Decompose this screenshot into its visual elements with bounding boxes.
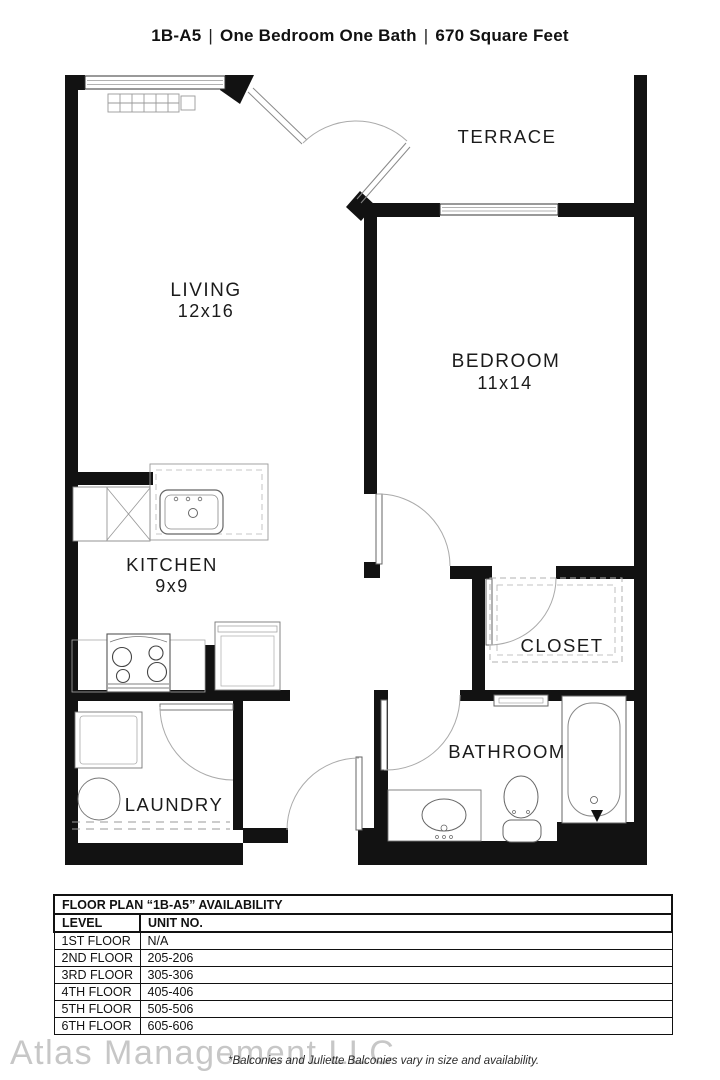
wall-top-left (65, 75, 85, 90)
terrace-door-fixed-leaf (248, 92, 302, 144)
washer-icon (75, 712, 142, 768)
table-title-row: FLOOR PLAN “1B-A5” AVAILABILITY (54, 895, 672, 914)
heater-control-box (181, 96, 195, 110)
wall-bottom-bathroom (370, 841, 647, 865)
room-label-terrace: TERRACE (458, 126, 557, 147)
col-header-unit: UNIT NO. (140, 914, 672, 932)
room-dims-bedroom: 11x14 (477, 373, 532, 393)
unit-cell: N/A (140, 932, 672, 950)
wall-bottom-laundry (65, 843, 243, 865)
bedroom-window (440, 204, 558, 215)
table-header-row: LEVEL UNIT NO. (54, 914, 672, 932)
col-header-level: LEVEL (54, 914, 140, 932)
toilet-icon (504, 776, 538, 818)
terrace-door-leaf (357, 143, 406, 199)
kitchen-sink-icon (160, 490, 223, 534)
level-cell: 2ND FLOOR (54, 950, 140, 967)
room-label-closet: CLOSET (520, 635, 603, 656)
wall-bedroom-left (364, 214, 377, 494)
availability-table: FLOOR PLAN “1B-A5” AVAILABILITY LEVEL UN… (53, 894, 673, 1035)
shower-niche (494, 695, 548, 706)
table-row: 6TH FLOOR 605-606 (54, 1018, 672, 1035)
bedroom-door-arc (377, 494, 450, 566)
terrace-french-door (248, 88, 410, 203)
room-label-kitchen: KITCHEN (126, 554, 218, 575)
table-row: 3RD FLOOR 305-306 (54, 967, 672, 984)
table-row: 4TH FLOOR 405-406 (54, 984, 672, 1001)
wall-bottom-step (243, 828, 288, 843)
wall-laundry-right (233, 701, 243, 830)
room-label-bedroom: BEDROOM (452, 351, 561, 372)
vanity-basin (422, 799, 466, 831)
table-row: 1ST FLOOR N/A (54, 932, 672, 950)
company-watermark: Atlas Management LLC (10, 1034, 395, 1073)
table-title: FLOOR PLAN “1B-A5” AVAILABILITY (54, 895, 672, 914)
level-cell: 5TH FLOOR (54, 1001, 140, 1018)
unit-cell: 205-206 (140, 950, 672, 967)
terrace-door-swing-arc (303, 121, 407, 143)
level-cell: 6TH FLOOR (54, 1018, 140, 1035)
floor-plan-page: 1B-A5|One Bedroom One Bath|670 Square Fe… (0, 0, 720, 1080)
wall-kitchen-stub (65, 472, 153, 485)
wall-kitchen-peninsula (205, 645, 216, 701)
table-row: 2ND FLOOR 205-206 (54, 950, 672, 967)
unit-cell: 405-406 (140, 984, 672, 1001)
laundry-door-arc (160, 707, 233, 780)
wall-kitchen-bottom-right (216, 690, 290, 701)
room-label-bathroom: BATHROOM (448, 741, 566, 762)
living-window (85, 76, 225, 89)
level-cell: 1ST FLOOR (54, 932, 140, 950)
balcony-disclaimer-note: *Balconies and Juliette Balconies vary i… (228, 1055, 539, 1067)
laundry-door-leaf (160, 704, 233, 710)
entry-door-leaf (356, 757, 362, 830)
wall-bedroom-top-right (558, 203, 647, 217)
bedroom-door-leaf (376, 494, 382, 564)
toilet-tank (503, 820, 541, 842)
level-cell: 4TH FLOOR (54, 984, 140, 1001)
refrigerator-icon (73, 487, 150, 541)
table-row: 5TH FLOOR 505-506 (54, 1001, 672, 1018)
wall-closet-top-left (450, 566, 492, 579)
room-label-laundry: LAUNDRY (125, 794, 224, 815)
terrace-door-fixed-leaf (253, 88, 307, 140)
wall-right (634, 75, 647, 865)
wall-closet-top-right (556, 566, 634, 579)
terrace-door-leaf (361, 147, 410, 203)
dryer-icon (78, 778, 120, 820)
burner (117, 670, 130, 683)
closet-door-leaf (486, 579, 492, 645)
burner (113, 648, 132, 667)
wall-bottom-right-block (557, 822, 647, 841)
living-heater-icon (108, 94, 195, 112)
bathroom-door-leaf (381, 700, 387, 770)
room-label-living: LIVING (170, 280, 241, 301)
unit-cell: 305-306 (140, 967, 672, 984)
room-dims-living: 12x16 (178, 301, 235, 321)
bathroom-fixtures (388, 695, 626, 842)
wall-closet-divider (472, 574, 485, 692)
unit-cell: 505-506 (140, 1001, 672, 1018)
room-dims-kitchen: 9x9 (155, 576, 189, 596)
burner (148, 663, 167, 682)
unit-cell: 605-606 (140, 1018, 672, 1035)
level-cell: 3RD FLOOR (54, 967, 140, 984)
entry-door-arc (287, 758, 359, 830)
burner (149, 646, 163, 660)
